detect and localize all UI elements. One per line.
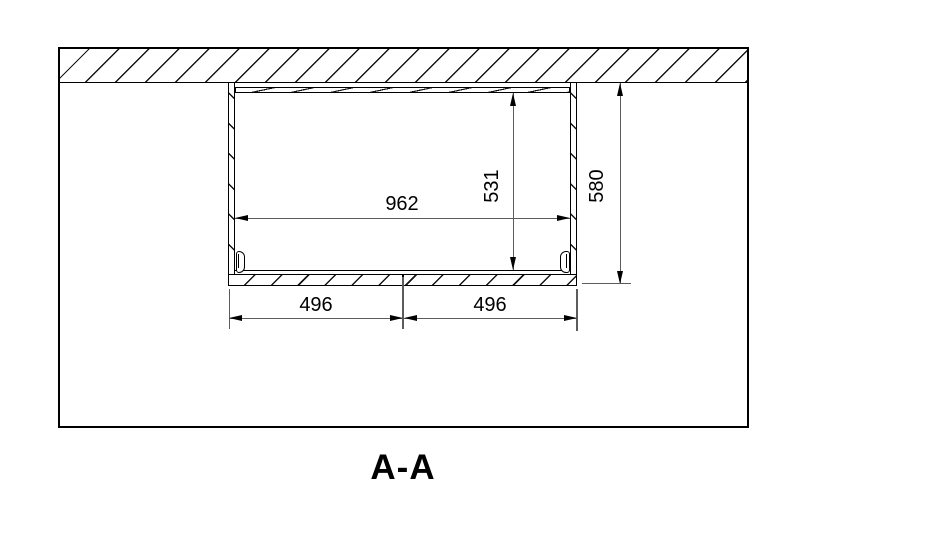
arrow-right-icon: [390, 315, 403, 321]
section-drawing: 962 531 580 496 496 A-A: [0, 0, 950, 544]
extension-line: [582, 283, 631, 284]
arrow-left-icon: [235, 215, 248, 221]
extension-line: [229, 289, 230, 329]
section-view-title: A-A: [338, 450, 468, 485]
cabinet-top-panel: [235, 87, 570, 93]
cabinet-floor-line: [235, 270, 570, 271]
arrow-down-icon: [617, 271, 623, 284]
dim-line: [620, 83, 621, 284]
dim-label-bottom-right-width: 496: [440, 295, 540, 315]
extension-line: [402, 277, 403, 329]
ceiling-hatch: [60, 49, 747, 83]
arrow-right-icon: [557, 215, 570, 221]
dim-label-interior-height: 531: [482, 136, 502, 236]
left-door-roller-detail: [238, 254, 239, 268]
left-door-roller: [236, 251, 246, 273]
room-outline: [58, 47, 749, 428]
arrow-up-icon: [510, 93, 516, 106]
arrow-left-icon: [404, 315, 417, 321]
dim-line: [513, 93, 514, 270]
cabinet-left-side-panel: [228, 83, 235, 274]
arrow-left-icon: [229, 315, 242, 321]
dim-line: [235, 218, 570, 219]
dim-label-interior-width: 962: [352, 194, 452, 214]
cabinet-right-side-panel: [570, 83, 577, 274]
arrow-down-icon: [510, 257, 516, 270]
dim-label-bottom-left-width: 496: [266, 295, 366, 315]
dim-line: [403, 318, 577, 319]
right-door-roller: [560, 251, 570, 273]
right-door-roller-detail: [566, 254, 567, 268]
dim-label-overall-height: 580: [587, 136, 607, 236]
dim-line: [229, 318, 403, 319]
extension-line: [576, 289, 577, 331]
arrow-up-icon: [617, 83, 623, 96]
arrow-right-icon: [564, 315, 577, 321]
